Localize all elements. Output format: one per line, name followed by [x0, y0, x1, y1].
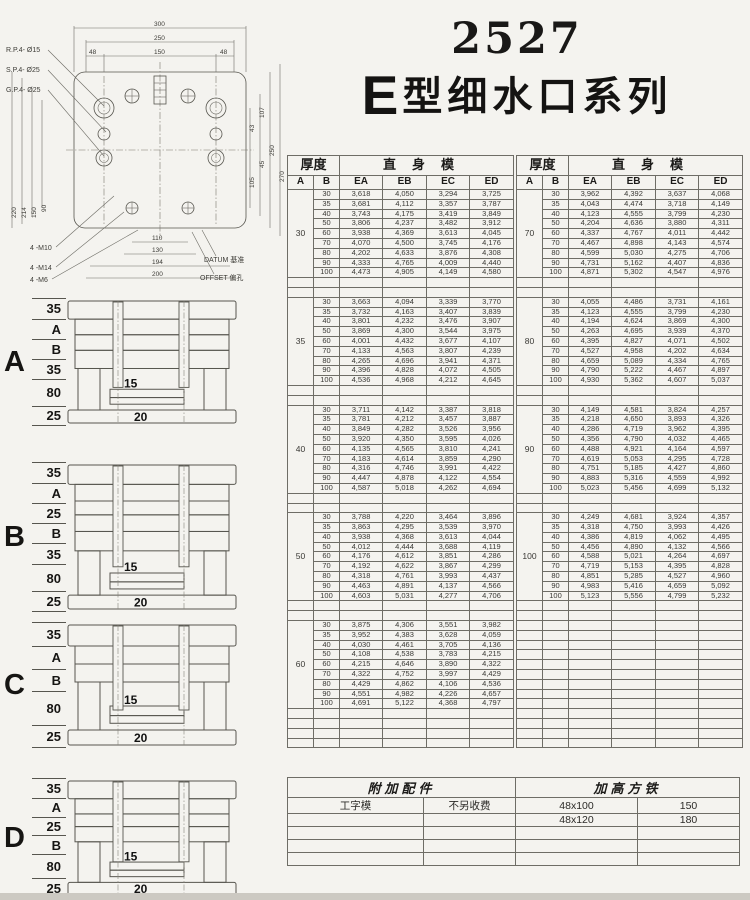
diagram-letter: C: [4, 622, 32, 748]
spec-cell: 3,824: [656, 405, 699, 415]
group-a-value: 100: [517, 513, 543, 601]
spec-cell: 4,106: [427, 679, 470, 689]
empty-cell: [383, 728, 427, 738]
spacer-row: [517, 728, 743, 738]
spec-cell: 4,697: [699, 552, 743, 562]
spacer-row: [517, 699, 743, 709]
spec-cell: 4,930: [569, 376, 612, 386]
spec-row: 353,7814,2123,4573,887: [288, 415, 514, 425]
empty-cell: [340, 601, 383, 611]
spec-cell: 3,975: [470, 327, 514, 337]
spec-cell: 3,938: [340, 229, 383, 239]
spec-cell: 30: [543, 513, 569, 523]
spec-cell: 4,132: [656, 542, 699, 552]
col-header-a: A: [517, 176, 543, 190]
mold-plate: [75, 799, 229, 814]
col-header-a: A: [288, 176, 314, 190]
spec-cell: 4,622: [383, 562, 427, 572]
spec-cell: 4,275: [656, 248, 699, 258]
spec-cell: 4,696: [383, 356, 427, 366]
spec-row: 1004,5875,0184,2624,694: [288, 483, 514, 493]
spec-cell: 4,263: [569, 327, 612, 337]
empty-cell: [517, 650, 543, 660]
spec-cell: 4,326: [699, 415, 743, 425]
accessory-cell: [288, 814, 424, 827]
spec-cell: 4,055: [569, 297, 612, 307]
spec-cell: 4,921: [612, 444, 656, 454]
spec-cell: 4,215: [470, 650, 514, 660]
spec-cell: 4,427: [656, 464, 699, 474]
spec-cell: 5,185: [612, 464, 656, 474]
spec-cell: 3,997: [427, 670, 470, 680]
mold-section-a: A 35AB358025 1520: [4, 298, 268, 426]
header-straight-mold: 直身模: [569, 156, 743, 176]
spec-cell: 3,839: [470, 307, 514, 317]
spec-cell: 4,502: [699, 336, 743, 346]
col-header-ea: EA: [569, 176, 612, 190]
col-header-b: B: [314, 176, 340, 190]
accessory-cell: [516, 827, 638, 840]
empty-cell: [656, 660, 699, 670]
spec-row: 504,1084,5383,7834,215: [288, 650, 514, 660]
empty-cell: [656, 611, 699, 621]
spec-cell: 4,395: [569, 336, 612, 346]
empty-cell: [656, 395, 699, 405]
spec-table-right: 厚度 直身模 A B EA EB EC ED 70303,9624,3923,6…: [516, 155, 743, 748]
spec-cell: 4,357: [699, 513, 743, 523]
spec-cell: 4,565: [383, 444, 427, 454]
spec-cell: 70: [314, 454, 340, 464]
empty-cell: [543, 738, 569, 748]
technical-drawing: 300 250 48 150 48 43 105 45 107 250 270 …: [4, 16, 286, 284]
ejector-base-plate: [110, 398, 184, 405]
empty-cell: [543, 728, 569, 738]
spec-cell: 4,650: [612, 415, 656, 425]
spec-cell: 3,613: [427, 229, 470, 239]
spec-cell: 4,282: [383, 425, 427, 435]
spacer-row: [517, 385, 743, 395]
spec-row: 354,0434,4743,7184,149: [517, 199, 743, 209]
dim-band-label: 25: [32, 817, 66, 836]
spacer-row: [517, 611, 743, 621]
spacer-row: [517, 709, 743, 719]
empty-cell: [569, 395, 612, 405]
spec-row: 404,1234,5553,7994,230: [517, 209, 743, 219]
spec-cell: 3,859: [427, 454, 470, 464]
empty-cell: [569, 670, 612, 680]
spec-cell: 4,212: [427, 376, 470, 386]
spec-cell: 90: [314, 581, 340, 591]
empty-cell: [656, 699, 699, 709]
empty-cell: [314, 278, 340, 288]
spec-cell: 4,011: [656, 229, 699, 239]
spec-cell: 3,982: [470, 621, 514, 631]
spec-cell: 4,505: [470, 366, 514, 376]
spec-row: 804,6595,0894,3344,765: [517, 356, 743, 366]
spec-cell: 50: [314, 327, 340, 337]
empty-cell: [543, 699, 569, 709]
empty-cell: [656, 493, 699, 503]
spec-cell: 4,474: [612, 199, 656, 209]
spec-cell: 4,334: [656, 356, 699, 366]
spacer-row: [288, 395, 514, 405]
empty-cell: [699, 728, 743, 738]
empty-cell: [569, 611, 612, 621]
spec-cell: 4,030: [340, 640, 383, 650]
spec-cell: 35: [543, 523, 569, 533]
spec-cell: 3,938: [340, 532, 383, 542]
spec-cell: 4,149: [569, 405, 612, 415]
spec-row: 60303,8754,3063,5513,982: [288, 621, 514, 631]
empty-cell: [383, 395, 427, 405]
spec-cell: 4,797: [470, 699, 514, 709]
group-a-value: 30: [288, 190, 314, 278]
catalog-number: 2527: [292, 18, 742, 61]
spec-cell: 70: [543, 562, 569, 572]
spec-cell: 4,555: [612, 209, 656, 219]
spec-cell: 4,645: [470, 376, 514, 386]
empty-cell: [569, 621, 612, 631]
spec-cell: 4,527: [656, 572, 699, 582]
spec-cell: 3,731: [656, 297, 699, 307]
dim-band-label: 80: [32, 564, 66, 591]
spec-cell: 4,898: [612, 238, 656, 248]
spec-cell: 4,368: [427, 699, 470, 709]
spec-cell: 40: [314, 532, 340, 542]
spec-cell: 4,983: [569, 581, 612, 591]
accessories-header: 附加配件: [288, 778, 516, 798]
accessory-cell: [288, 840, 424, 853]
spec-cell: 3,595: [427, 434, 470, 444]
spec-cell: 4,306: [383, 621, 427, 631]
spec-cell: 3,893: [656, 415, 699, 425]
empty-cell: [383, 601, 427, 611]
spec-cell: 4,012: [340, 542, 383, 552]
spec-cell: 30: [543, 190, 569, 200]
empty-cell: [340, 278, 383, 288]
spec-cell: 4,044: [470, 532, 514, 542]
dim-band-label: 35: [32, 298, 66, 319]
dim-label: 220: [11, 207, 18, 218]
spec-cell: 50: [543, 219, 569, 229]
mold-section-d: D 35A25B8025 1520: [4, 778, 268, 898]
empty-cell: [517, 493, 543, 503]
spec-cell: 3,539: [427, 523, 470, 533]
spec-cell: 4,311: [699, 219, 743, 229]
empty-cell: [314, 493, 340, 503]
accessory-row: [288, 853, 740, 866]
spec-cell: 3,869: [340, 327, 383, 337]
diagram-letter: A: [4, 298, 32, 426]
spec-cell: 50: [543, 434, 569, 444]
spec-cell: 3,849: [340, 425, 383, 435]
spacer-row: [517, 660, 743, 670]
empty-cell: [699, 738, 743, 748]
spec-cell: 4,447: [340, 474, 383, 484]
spec-row: 504,0124,4443,6884,119: [288, 542, 514, 552]
page-title: 2527 E型细水口系列: [292, 18, 742, 127]
empty-cell: [612, 503, 656, 513]
spec-cell: 5,162: [612, 258, 656, 268]
spec-cell: 4,633: [383, 248, 427, 258]
series-title: E型细水口系列: [292, 63, 742, 127]
spec-cell: 3,896: [470, 513, 514, 523]
spec-cell: 4,202: [656, 346, 699, 356]
empty-cell: [543, 640, 569, 650]
spec-cell: 60: [314, 444, 340, 454]
spec-row: 804,2024,6333,8764,308: [288, 248, 514, 258]
empty-cell: [314, 738, 340, 748]
empty-cell: [656, 601, 699, 611]
empty-cell: [470, 719, 514, 729]
spec-cell: 30: [314, 190, 340, 200]
series-name: 型细水口系列: [402, 75, 672, 119]
spec-cell: 4,300: [383, 327, 427, 337]
spec-cell: 60: [543, 552, 569, 562]
empty-cell: [427, 728, 470, 738]
spec-cell: 4,547: [656, 268, 699, 278]
col-header-ea: EA: [340, 176, 383, 190]
mold-plate: [75, 350, 229, 368]
spec-cell: 50: [314, 650, 340, 660]
spec-cell: 4,212: [383, 415, 427, 425]
empty-cell: [656, 385, 699, 395]
empty-cell: [517, 385, 543, 395]
spacer-row: [517, 278, 743, 288]
spec-row: 40303,7114,1423,3873,818: [288, 405, 514, 415]
spec-cell: 5,153: [612, 562, 656, 572]
spec-cell: 3,637: [656, 190, 699, 200]
spec-row: 604,1354,5653,8104,241: [288, 444, 514, 454]
spec-cell: 4,383: [383, 630, 427, 640]
ejector-retainer-plate: [110, 573, 184, 582]
ejector-base-plate: [110, 716, 184, 724]
spec-row: 404,3864,8194,0624,495: [517, 532, 743, 542]
empty-cell: [314, 719, 340, 729]
spacer-row: [288, 728, 514, 738]
empty-cell: [517, 503, 543, 513]
spec-cell: 4,215: [340, 660, 383, 670]
accessory-cell: [288, 827, 424, 840]
spec-cell: 3,464: [427, 513, 470, 523]
spec-cell: 5,018: [383, 483, 427, 493]
empty-cell: [699, 395, 743, 405]
spec-cell: 3,788: [340, 513, 383, 523]
spec-cell: 3,357: [427, 199, 470, 209]
empty-cell: [699, 287, 743, 297]
spec-row: 904,4634,8914,1374,566: [288, 581, 514, 591]
group-a-value: 80: [517, 297, 543, 385]
spec-cell: 4,527: [569, 346, 612, 356]
empty-cell: [340, 493, 383, 503]
spec-cell: 4,277: [427, 591, 470, 601]
bottom-clamp-plate: [68, 730, 236, 745]
empty-cell: [699, 689, 743, 699]
spec-cell: 4,290: [470, 454, 514, 464]
mold-plate: [75, 335, 229, 351]
spec-cell: 4,318: [340, 572, 383, 582]
empty-cell: [656, 621, 699, 631]
spec-cell: 4,566: [470, 581, 514, 591]
mold-plate: [75, 531, 229, 550]
spec-cell: 3,688: [427, 542, 470, 552]
gp-hole-label: G.P.4- Ø25: [6, 87, 41, 94]
empty-cell: [288, 728, 314, 738]
accessory-row: [288, 827, 740, 840]
dimension-stack: 35AB8025: [32, 622, 66, 748]
empty-cell: [383, 719, 427, 729]
spec-cell: 4,202: [340, 248, 383, 258]
empty-cell: [470, 493, 514, 503]
empty-cell: [612, 621, 656, 631]
spec-cell: 3,476: [427, 317, 470, 327]
spec-cell: 35: [543, 415, 569, 425]
empty-cell: [569, 287, 612, 297]
spec-cell: 50: [314, 542, 340, 552]
empty-cell: [612, 493, 656, 503]
spec-cell: 4,761: [383, 572, 427, 582]
accessory-row: 工字模不另收费48x100150: [288, 798, 740, 814]
spacer-block: [204, 682, 226, 730]
spec-cell: 4,333: [340, 258, 383, 268]
col-header-b: B: [543, 176, 569, 190]
spec-cell: 3,457: [427, 415, 470, 425]
spec-cell: 3,711: [340, 405, 383, 415]
spec-cell: 100: [314, 483, 340, 493]
spec-cell: 30: [314, 297, 340, 307]
accessory-cell: 48x100: [516, 798, 638, 814]
empty-cell: [543, 630, 569, 640]
spec-table-left: 厚度 直身模 A B EA EB EC ED 30303,6184,0503,2…: [287, 155, 514, 748]
spec-cell: 70: [314, 346, 340, 356]
spec-cell: 5,416: [612, 581, 656, 591]
col-header-ed: ED: [699, 176, 743, 190]
empty-cell: [656, 670, 699, 680]
spec-cell: 4,094: [383, 297, 427, 307]
spec-cell: 35: [314, 630, 340, 640]
mold-bottom-dim: 20: [134, 596, 148, 610]
spec-cell: 40: [543, 209, 569, 219]
bottom-clamp-plate: [68, 595, 236, 609]
spec-cell: 4,241: [470, 444, 514, 454]
spec-cell: 3,939: [656, 327, 699, 337]
spec-row: 704,6195,0534,2954,728: [517, 454, 743, 464]
spec-cell: 30: [314, 621, 340, 631]
spec-row: 354,3184,7503,9934,426: [517, 523, 743, 533]
spacer-block: [78, 682, 100, 730]
spec-cell: 4,581: [612, 405, 656, 415]
spec-cell: 35: [314, 523, 340, 533]
header-straight-mold: 直身模: [340, 156, 514, 176]
empty-cell: [543, 278, 569, 288]
spec-cell: 3,613: [427, 532, 470, 542]
spec-cell: 50: [543, 542, 569, 552]
spec-cell: 3,993: [656, 523, 699, 533]
spec-cell: 4,465: [699, 434, 743, 444]
empty-cell: [383, 611, 427, 621]
datum-callouts: DATUM 基准 OFFSET 偏孔: [192, 230, 244, 282]
spec-cell: 3,783: [427, 650, 470, 660]
empty-cell: [340, 728, 383, 738]
mold-inner-dim: 15: [124, 377, 138, 391]
spec-row: 704,4674,8984,1434,574: [517, 238, 743, 248]
dim-band-label: 80: [32, 854, 66, 878]
spec-cell: 5,122: [383, 699, 427, 709]
spacer-row: [517, 493, 743, 503]
spec-cell: 4,026: [470, 434, 514, 444]
spec-cell: 3,526: [427, 425, 470, 435]
spec-cell: 4,790: [569, 366, 612, 376]
empty-cell: [288, 278, 314, 288]
empty-cell: [699, 611, 743, 621]
spec-cell: 4,059: [470, 630, 514, 640]
spec-cell: 4,461: [383, 640, 427, 650]
mold-cross-section: 1520: [66, 298, 238, 426]
spec-cell: 3,681: [340, 199, 383, 209]
spacer-row: [288, 709, 514, 719]
empty-cell: [427, 611, 470, 621]
spacer-row: [288, 601, 514, 611]
empty-cell: [543, 493, 569, 503]
spec-cell: 3,993: [427, 572, 470, 582]
empty-cell: [314, 395, 340, 405]
spec-row: 403,8014,2323,4763,907: [288, 317, 514, 327]
empty-cell: [612, 738, 656, 748]
spec-cell: 4,337: [569, 229, 612, 239]
empty-cell: [543, 719, 569, 729]
spec-cell: 4,657: [470, 689, 514, 699]
empty-cell: [543, 385, 569, 395]
dim-band-label: 35: [32, 462, 66, 483]
spec-row: 704,5274,9584,2024,634: [517, 346, 743, 356]
spec-cell: 4,122: [427, 474, 470, 484]
spec-cell: 90: [314, 474, 340, 484]
top-clamp-plate: [68, 625, 236, 646]
dim-label: 48: [89, 49, 97, 56]
spec-cell: 4,050: [383, 190, 427, 200]
mold-inner-dim: 15: [124, 849, 138, 863]
empty-cell: [383, 493, 427, 503]
spec-cell: 3,732: [340, 307, 383, 317]
offset-label: OFFSET 偏孔: [200, 273, 243, 282]
spec-cell: 4,467: [569, 238, 612, 248]
spec-row: 604,3954,8274,0714,502: [517, 336, 743, 346]
empty-cell: [383, 385, 427, 395]
spec-cell: 4,495: [699, 532, 743, 542]
dimension-stack: 35A25B8025: [32, 778, 66, 898]
empty-cell: [612, 728, 656, 738]
spec-cell: 4,386: [569, 532, 612, 542]
empty-cell: [427, 709, 470, 719]
spec-cell: 3,743: [340, 209, 383, 219]
accessory-cell: [424, 814, 516, 827]
spec-cell: 4,062: [656, 532, 699, 542]
spec-cell: 4,862: [383, 679, 427, 689]
accessory-row: 48x120180: [288, 814, 740, 827]
spec-row: 504,3564,7904,0324,465: [517, 434, 743, 444]
empty-cell: [340, 287, 383, 297]
spec-cell: 5,316: [612, 474, 656, 484]
spec-row: 404,1944,6243,8694,300: [517, 317, 743, 327]
mold-plate: [75, 484, 229, 501]
spec-cell: 3,801: [340, 317, 383, 327]
spec-row: 704,0704,5003,7454,176: [288, 238, 514, 248]
spec-cell: 80: [543, 464, 569, 474]
spec-cell: 30: [314, 513, 340, 523]
dim-band-label: B: [32, 339, 66, 359]
spec-cell: 3,991: [427, 464, 470, 474]
spec-cell: 4,905: [383, 268, 427, 278]
